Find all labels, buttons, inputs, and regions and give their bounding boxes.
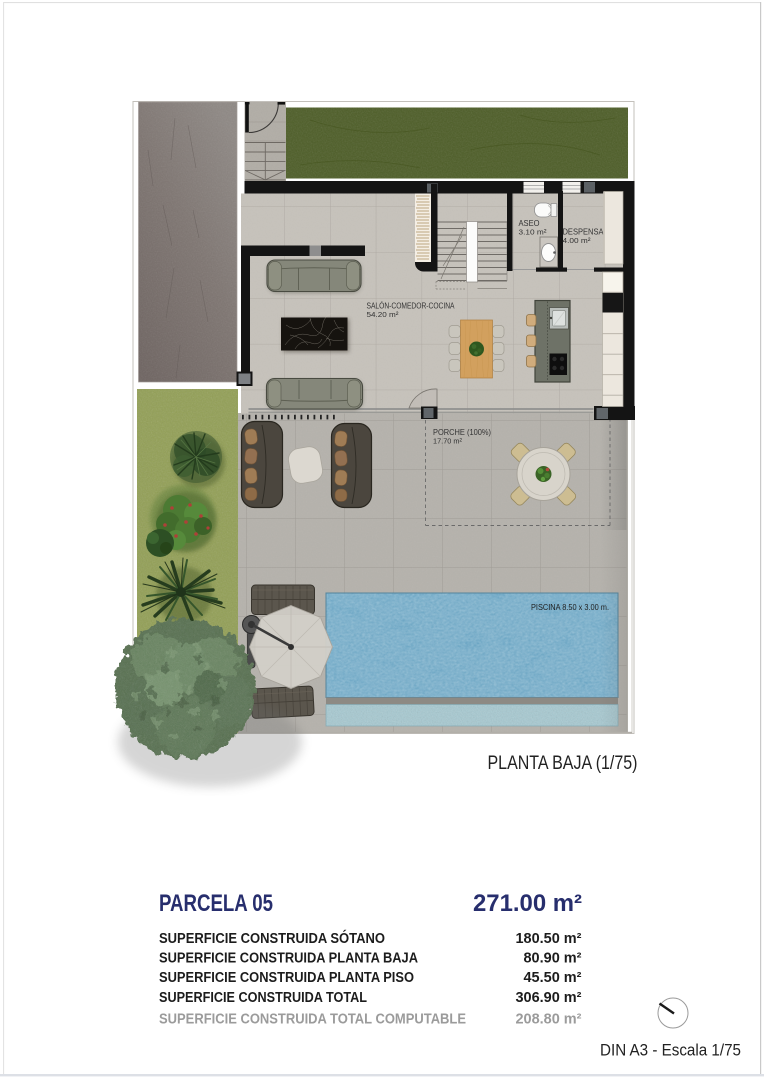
- svg-text:SUPERFICIE CONSTRUIDA TOTAL CO: SUPERFICIE CONSTRUIDA TOTAL COMPUTABLE: [159, 1012, 466, 1028]
- svg-text:SUPERFICIE CONSTRUIDA PLANTA B: SUPERFICIE CONSTRUIDA PLANTA BAJA: [159, 951, 418, 967]
- svg-text:180.50 m²: 180.50 m²: [516, 931, 582, 947]
- svg-text:80.90 m²: 80.90 m²: [524, 951, 582, 967]
- svg-text:208.80 m²: 208.80 m²: [516, 1012, 582, 1028]
- svg-text:PISCINA 8.50 x 3.00 m.: PISCINA 8.50 x 3.00 m.: [531, 603, 609, 612]
- svg-text:SUPERFICIE CONSTRUIDA TOTAL: SUPERFICIE CONSTRUIDA TOTAL: [159, 990, 367, 1006]
- svg-text:SALÓN-COMEDOR-COCINA: SALÓN-COMEDOR-COCINA: [367, 301, 455, 311]
- svg-text:SUPERFICIE CONSTRUIDA PLANTA P: SUPERFICIE CONSTRUIDA PLANTA PISO: [159, 970, 414, 986]
- svg-text:17.70 m²: 17.70 m²: [433, 437, 462, 446]
- svg-text:3.10 m²: 3.10 m²: [519, 228, 548, 237]
- svg-text:54.20 m²: 54.20 m²: [367, 310, 400, 319]
- svg-text:306.90 m²: 306.90 m²: [516, 990, 582, 1006]
- svg-text:SUPERFICIE CONSTRUIDA SÓTANO: SUPERFICIE CONSTRUIDA SÓTANO: [159, 929, 385, 947]
- svg-text:4.00 m²: 4.00 m²: [563, 236, 592, 245]
- svg-text:45.50 m²: 45.50 m²: [524, 970, 582, 986]
- svg-text:PLANTA BAJA (1/75): PLANTA BAJA (1/75): [488, 753, 638, 774]
- svg-text:DIN A3 - Escala 1/75: DIN A3 - Escala 1/75: [600, 1041, 741, 1060]
- svg-text:271.00 m²: 271.00 m²: [473, 890, 582, 917]
- svg-text:PARCELA 05: PARCELA 05: [159, 890, 273, 917]
